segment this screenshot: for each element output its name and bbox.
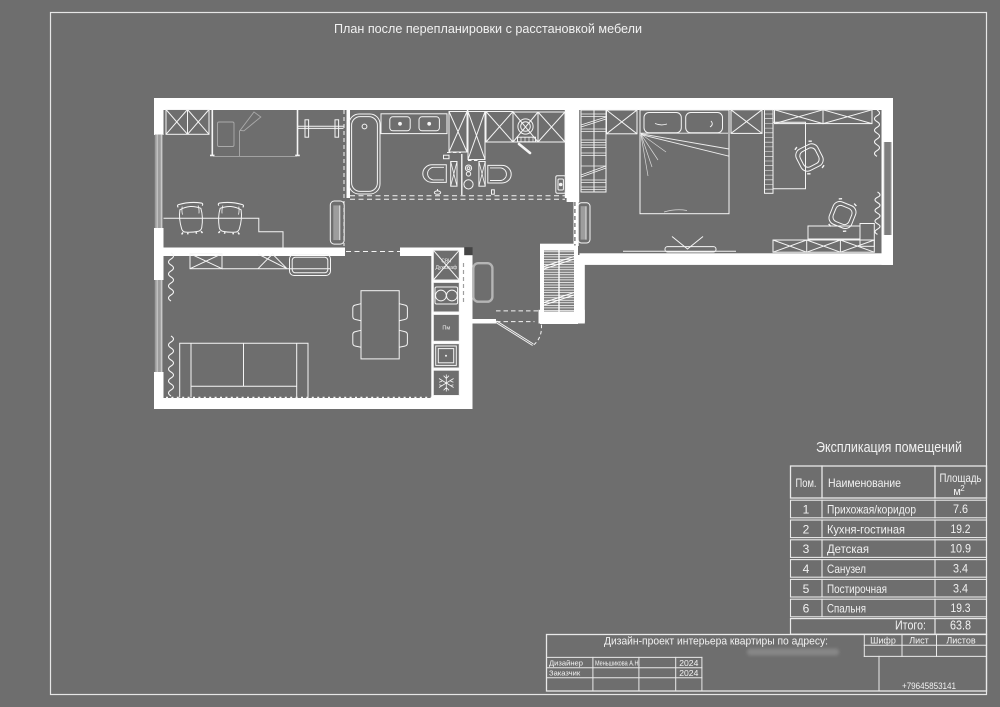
svg-text:Духшкаф: Духшкаф	[435, 265, 457, 271]
svg-text:План после перепланировки с ра: План после перепланировки с расстановкой…	[334, 21, 642, 36]
svg-text:2: 2	[803, 522, 810, 536]
svg-text:3: 3	[803, 542, 810, 556]
svg-text:Лист: Лист	[909, 636, 929, 646]
svg-text:Площадь: Площадь	[940, 471, 982, 485]
svg-text:3.4: 3.4	[953, 581, 968, 595]
svg-text:Меньшикова А.Н.: Меньшикова А.Н.	[595, 659, 640, 668]
svg-text:63.8: 63.8	[950, 619, 971, 633]
svg-text:СВЧ: СВЧ	[441, 259, 451, 265]
svg-text:1: 1	[803, 503, 810, 517]
svg-text:2024: 2024	[679, 668, 698, 678]
svg-text:7.6: 7.6	[953, 502, 968, 516]
svg-text:10.9: 10.9	[950, 542, 971, 556]
svg-text:Детская: Детская	[827, 542, 869, 556]
svg-text:Кухня-гостиная: Кухня-гостиная	[827, 522, 905, 536]
svg-text:Дизайнер: Дизайнер	[549, 659, 583, 668]
svg-text:Санузел: Санузел	[827, 562, 866, 576]
svg-text:Пм: Пм	[442, 326, 450, 332]
svg-text:Итого:: Итого:	[895, 619, 926, 633]
svg-text:Наименование: Наименование	[828, 476, 901, 490]
svg-text:Экспликация помещений: Экспликация помещений	[816, 440, 962, 456]
svg-text:2: 2	[960, 484, 965, 493]
svg-text:Дизайн-проект интерьера кварти: Дизайн-проект интерьера квартиры по адре…	[604, 636, 828, 648]
svg-text:Пом.: Пом.	[796, 476, 817, 490]
svg-text:6: 6	[803, 602, 810, 616]
svg-text:Прихожая/коридор: Прихожая/коридор	[827, 503, 916, 517]
svg-text:Спальня: Спальня	[827, 602, 866, 616]
svg-text:Заказчик: Заказчик	[549, 669, 581, 678]
svg-text:+79645853141: +79645853141	[902, 680, 956, 691]
svg-text:Шифр: Шифр	[870, 636, 896, 646]
svg-text:19.3: 19.3	[951, 601, 971, 615]
svg-text:4: 4	[803, 562, 810, 576]
svg-text:Листов: Листов	[946, 636, 975, 646]
svg-text:Постирочная: Постирочная	[827, 582, 887, 596]
svg-text:2024: 2024	[679, 658, 698, 668]
svg-text:19.2: 19.2	[951, 522, 971, 536]
svg-text:3.4: 3.4	[953, 562, 968, 576]
svg-text:5: 5	[803, 582, 810, 596]
